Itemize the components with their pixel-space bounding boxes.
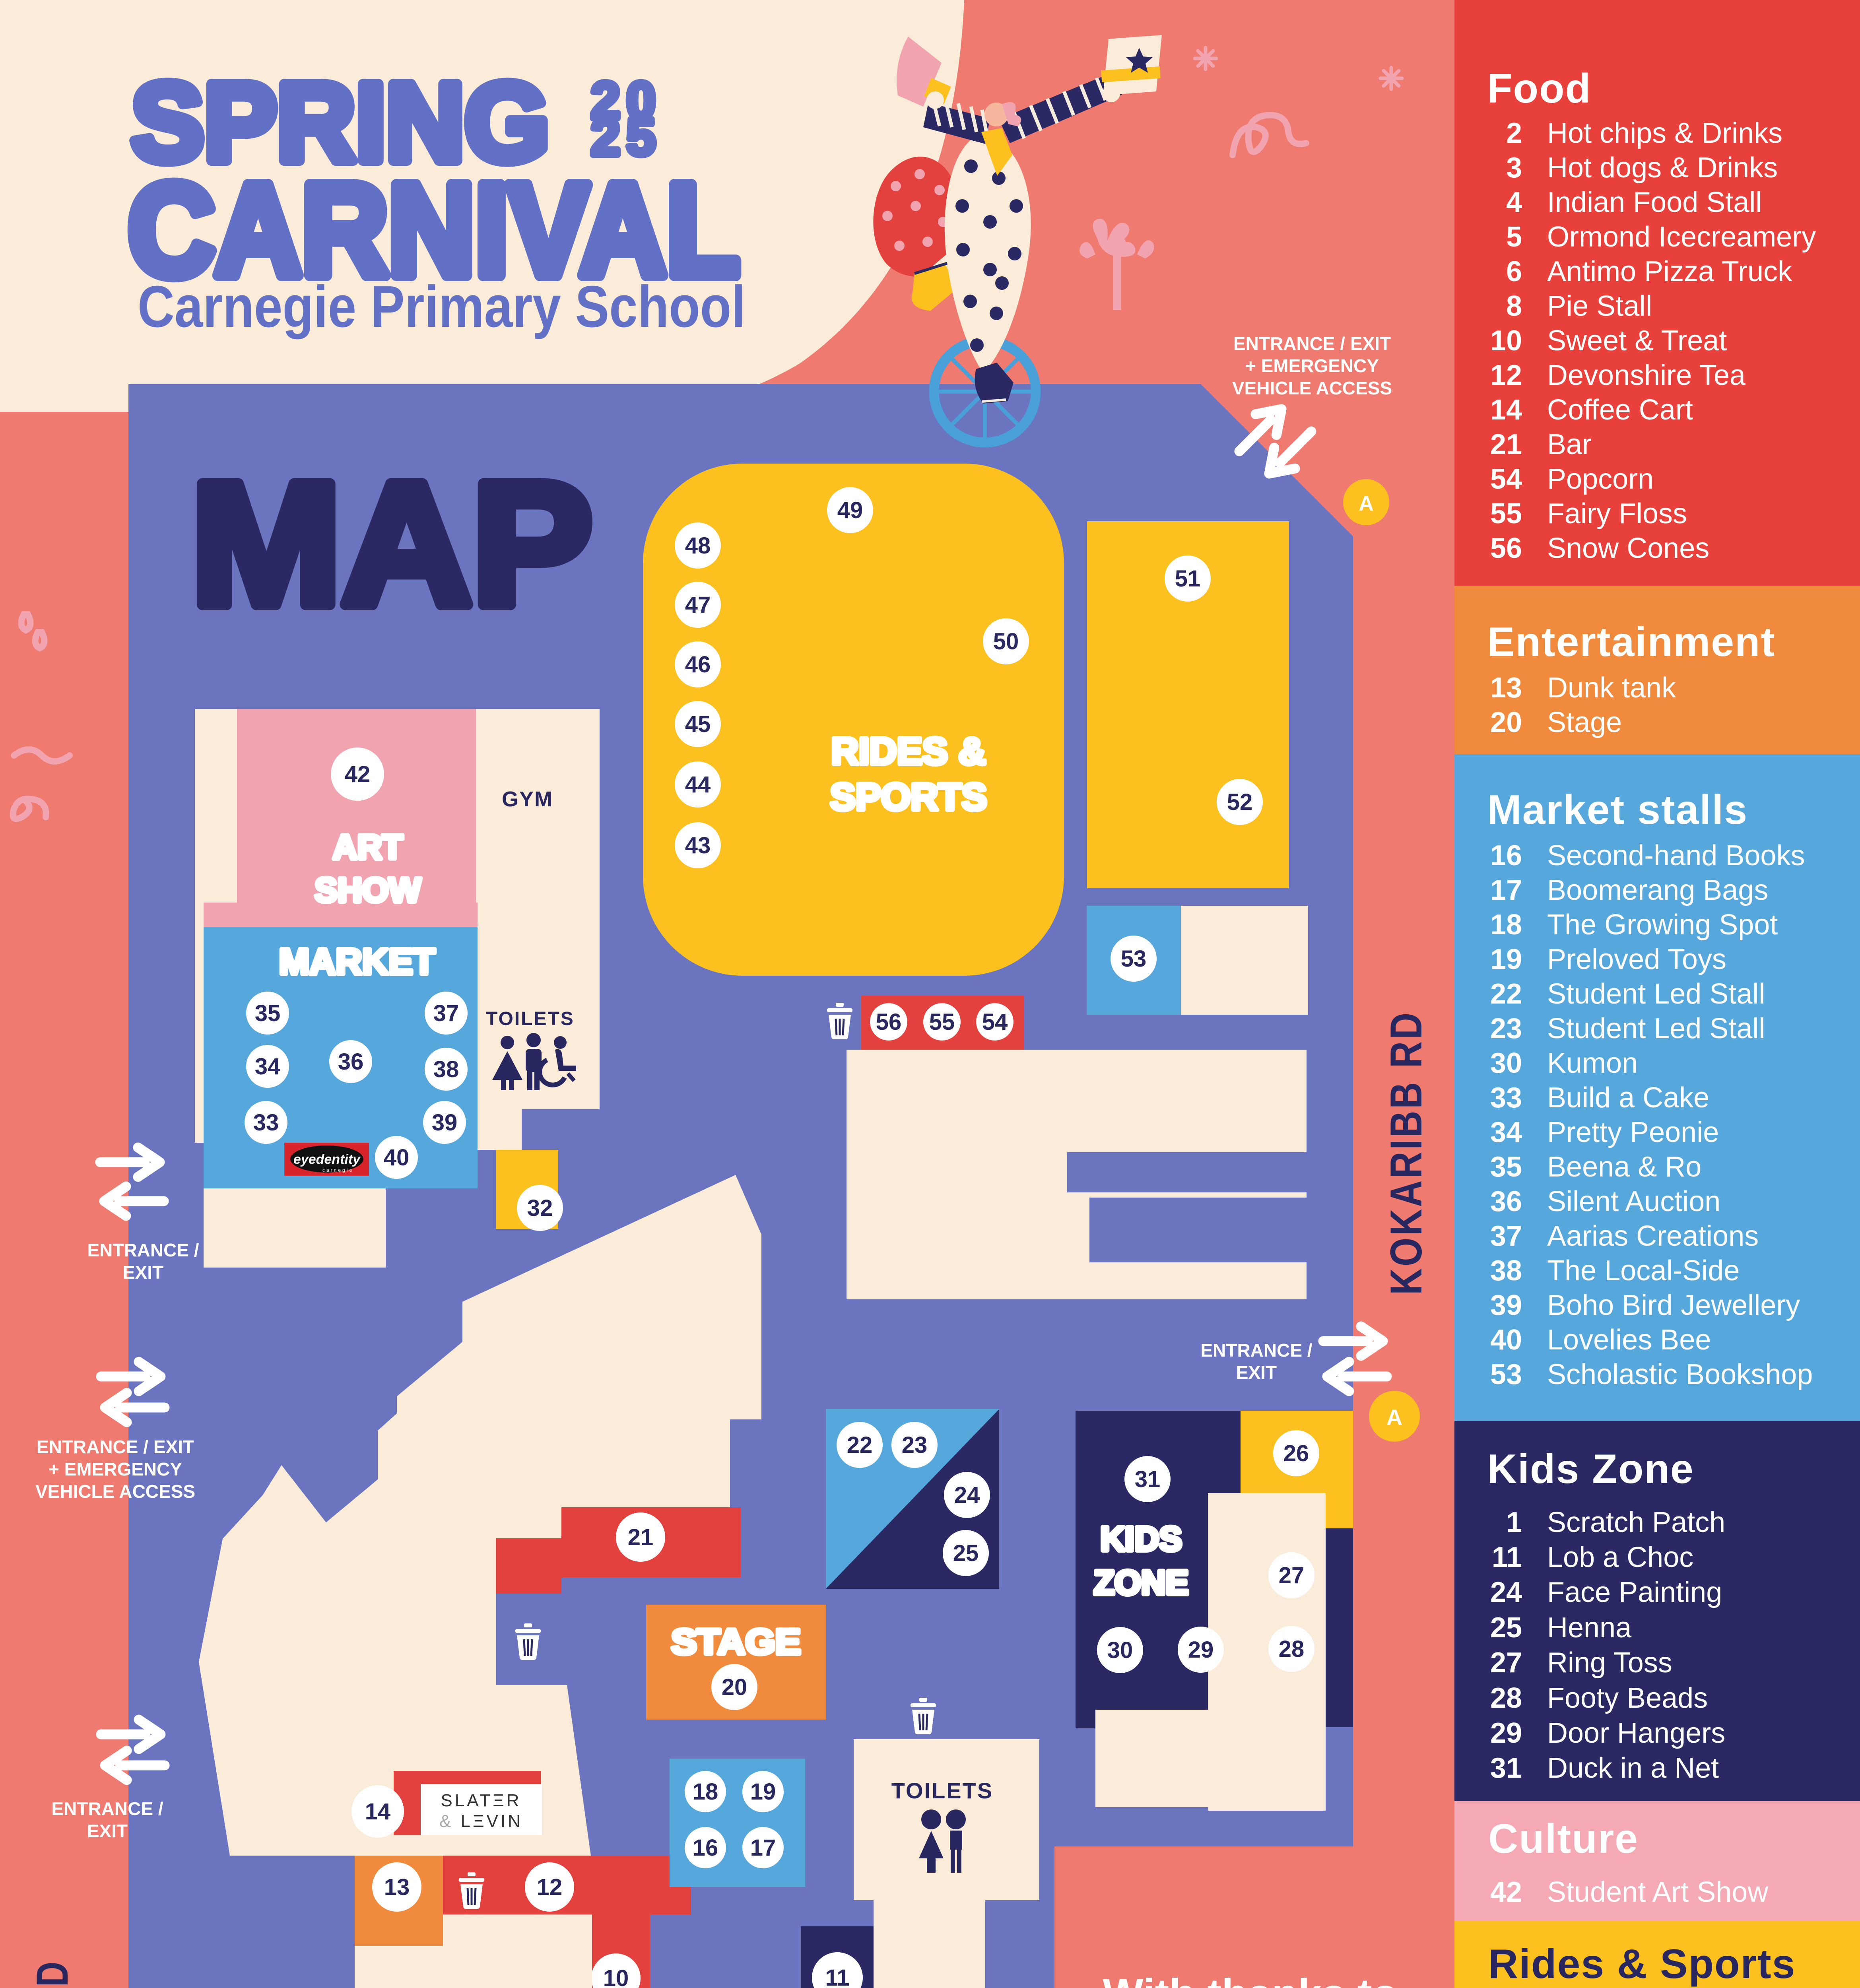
- svg-text:Footy Beads: Footy Beads: [1547, 1682, 1708, 1714]
- svg-text:Popcorn: Popcorn: [1547, 463, 1654, 495]
- svg-text:13: 13: [384, 1874, 410, 1900]
- svg-text:51: 51: [1175, 566, 1201, 592]
- svg-text:39: 39: [432, 1110, 458, 1136]
- svg-text:Kumon: Kumon: [1547, 1047, 1638, 1079]
- svg-text:23: 23: [1490, 1013, 1522, 1044]
- svg-text:30: 30: [1107, 1637, 1133, 1663]
- svg-text:8: 8: [1506, 290, 1522, 322]
- svg-text:25: 25: [1490, 1612, 1522, 1644]
- svg-text:35: 35: [1490, 1151, 1522, 1183]
- svg-text:ENTRANCE /: ENTRANCE /: [1200, 1340, 1312, 1361]
- svg-text:3: 3: [1506, 152, 1522, 184]
- svg-text:10: 10: [603, 1965, 629, 1988]
- svg-text:Scholastic Bookshop: Scholastic Bookshop: [1547, 1359, 1813, 1390]
- svg-text:56: 56: [876, 1009, 902, 1035]
- svg-text:Food: Food: [1487, 66, 1591, 112]
- svg-text:Indian Food Stall: Indian Food Stall: [1547, 186, 1762, 218]
- svg-text:Henna: Henna: [1547, 1612, 1632, 1644]
- svg-text:TOILETS: TOILETS: [891, 1778, 993, 1803]
- svg-text:Face Painting: Face Painting: [1547, 1576, 1722, 1608]
- svg-text:Beena & Ro: Beena & Ro: [1547, 1151, 1701, 1183]
- svg-text:47: 47: [685, 592, 711, 618]
- svg-text:29: 29: [1490, 1717, 1522, 1749]
- svg-text:ENTRANCE / EXIT: ENTRANCE / EXIT: [1233, 333, 1391, 354]
- svg-text:ENTRANCE /: ENTRANCE /: [51, 1798, 163, 1819]
- svg-text:Lob a Choc: Lob a Choc: [1547, 1541, 1693, 1573]
- svg-text:Sweet & Treat: Sweet & Treat: [1547, 325, 1727, 357]
- svg-text:17: 17: [750, 1835, 776, 1861]
- svg-text:22: 22: [1490, 978, 1522, 1010]
- svg-text:31: 31: [1135, 1466, 1161, 1492]
- svg-text:Rides & Sports: Rides & Sports: [1488, 1941, 1796, 1987]
- svg-text:55: 55: [929, 1009, 955, 1035]
- svg-text:18: 18: [693, 1779, 718, 1805]
- svg-text:42: 42: [1490, 1876, 1522, 1908]
- svg-text:14: 14: [365, 1799, 391, 1825]
- svg-text:24: 24: [954, 1482, 980, 1508]
- svg-text:39: 39: [1490, 1289, 1522, 1321]
- svg-text:carnegie: carnegie: [322, 1167, 353, 1173]
- svg-text:40: 40: [384, 1145, 410, 1171]
- svg-text:KIDS: KIDS: [1100, 1520, 1182, 1558]
- svg-text:28: 28: [1490, 1682, 1522, 1714]
- svg-text:Student Art Show: Student Art Show: [1547, 1876, 1769, 1908]
- svg-text:+ EMERGENCY: + EMERGENCY: [1245, 355, 1379, 376]
- svg-text:38: 38: [1490, 1255, 1522, 1287]
- svg-text:44: 44: [685, 772, 711, 798]
- svg-text:Culture: Culture: [1488, 1816, 1639, 1862]
- svg-text:10: 10: [1490, 325, 1522, 357]
- svg-text:19: 19: [1490, 944, 1522, 975]
- svg-text:Aarias Creations: Aarias Creations: [1547, 1220, 1759, 1252]
- svg-text:The Local-Side: The Local-Side: [1547, 1255, 1740, 1287]
- svg-text:54: 54: [982, 1009, 1008, 1035]
- svg-text:Lovelies Bee: Lovelies Bee: [1547, 1324, 1711, 1356]
- svg-text:Kids Zone: Kids Zone: [1487, 1446, 1694, 1492]
- svg-text:36: 36: [1490, 1186, 1522, 1217]
- svg-text:Ring Toss: Ring Toss: [1547, 1647, 1672, 1679]
- svg-text:The Growing Spot: The Growing Spot: [1547, 909, 1778, 941]
- svg-text:14: 14: [1490, 394, 1522, 426]
- svg-text:43: 43: [685, 833, 711, 858]
- svg-text:ART: ART: [333, 828, 403, 866]
- svg-text:Hot chips & Drinks: Hot chips & Drinks: [1547, 117, 1782, 149]
- svg-text:A: A: [1386, 1405, 1402, 1430]
- svg-text:17: 17: [1490, 874, 1522, 906]
- svg-text:SLATΞR: SLATΞR: [441, 1791, 521, 1810]
- svg-text:ENTRANCE / EXIT: ENTRANCE / EXIT: [37, 1437, 194, 1457]
- svg-text:2: 2: [1506, 117, 1522, 149]
- svg-text:26: 26: [1283, 1441, 1309, 1466]
- svg-text:MAP: MAP: [191, 447, 592, 642]
- svg-text:Boho Bird Jewellery: Boho Bird Jewellery: [1547, 1289, 1800, 1321]
- svg-text:20: 20: [1490, 707, 1522, 738]
- svg-text:Hot dogs & Drinks: Hot dogs & Drinks: [1547, 152, 1778, 184]
- svg-text:Silent Auction: Silent Auction: [1547, 1186, 1720, 1217]
- svg-text:21: 21: [1490, 429, 1522, 460]
- svg-text:Pie Stall: Pie Stall: [1547, 290, 1652, 322]
- svg-text:46: 46: [685, 652, 711, 678]
- svg-text:GYM: GYM: [502, 787, 553, 811]
- svg-text:Boomerang Bags: Boomerang Bags: [1547, 874, 1768, 906]
- svg-text:5: 5: [1506, 221, 1522, 253]
- svg-text:With thanks to: With thanks to: [1103, 1970, 1398, 1988]
- svg-text:Antimo Pizza Truck: Antimo Pizza Truck: [1547, 256, 1792, 287]
- svg-text:35: 35: [255, 1000, 281, 1026]
- svg-text:Preloved Toys: Preloved Toys: [1547, 944, 1726, 975]
- svg-text:Carnegie Primary School: Carnegie Primary School: [138, 274, 746, 340]
- svg-text:Fairy Floss: Fairy Floss: [1547, 498, 1687, 530]
- svg-text:22: 22: [847, 1432, 873, 1458]
- svg-text:VEHICLE ACCESS: VEHICLE ACCESS: [35, 1481, 195, 1502]
- svg-text:24: 24: [1490, 1576, 1522, 1608]
- svg-text:27: 27: [1279, 1563, 1305, 1588]
- svg-text:VEHICLE ACCESS: VEHICLE ACCESS: [1232, 378, 1392, 398]
- svg-text:Dunk tank: Dunk tank: [1547, 672, 1676, 704]
- svg-text:6: 6: [1506, 256, 1522, 287]
- svg-text:+ EMERGENCY: + EMERGENCY: [49, 1459, 182, 1479]
- svg-text:Student Led Stall: Student Led Stall: [1547, 978, 1765, 1010]
- svg-text:Market stalls: Market stalls: [1487, 787, 1748, 833]
- svg-text:11: 11: [1492, 1541, 1522, 1573]
- svg-text:Entertainment: Entertainment: [1487, 619, 1775, 665]
- svg-text:30: 30: [1490, 1047, 1522, 1079]
- svg-text:54: 54: [1490, 463, 1522, 495]
- svg-text:Bar: Bar: [1547, 429, 1592, 460]
- svg-text:19: 19: [750, 1779, 776, 1805]
- svg-text:4: 4: [1506, 186, 1522, 218]
- svg-text:Pretty Peonie: Pretty Peonie: [1547, 1116, 1719, 1148]
- svg-text:28: 28: [1279, 1636, 1305, 1662]
- svg-text:38: 38: [433, 1056, 459, 1082]
- svg-text:Ormond Icecreamery: Ormond Icecreamery: [1547, 221, 1816, 253]
- svg-text:Student Led Stall: Student Led Stall: [1547, 1013, 1765, 1044]
- svg-text:MARKET: MARKET: [279, 942, 435, 982]
- svg-text:21: 21: [628, 1524, 654, 1550]
- svg-text:31: 31: [1490, 1752, 1522, 1784]
- svg-text:13: 13: [1490, 672, 1522, 704]
- svg-text:18: 18: [1490, 909, 1522, 941]
- svg-text:29: 29: [1188, 1637, 1214, 1663]
- svg-text:SPORTS: SPORTS: [830, 776, 987, 818]
- svg-text:37: 37: [1490, 1220, 1522, 1252]
- svg-text:50: 50: [993, 629, 1019, 654]
- svg-text:53: 53: [1121, 946, 1147, 972]
- svg-text:RIDES &: RIDES &: [831, 730, 986, 773]
- svg-text:40: 40: [1490, 1324, 1522, 1356]
- svg-text:Build a Cake: Build a Cake: [1547, 1082, 1709, 1114]
- svg-text:A: A: [1359, 492, 1374, 515]
- svg-text:Scratch Patch: Scratch Patch: [1547, 1507, 1725, 1538]
- svg-text:KOKARIBB RD: KOKARIBB RD: [1381, 1011, 1431, 1295]
- svg-text:TRUGANINI RD: TRUGANINI RD: [27, 1960, 77, 1988]
- svg-text:TOILETS: TOILETS: [486, 1008, 575, 1029]
- svg-text:34: 34: [255, 1054, 281, 1079]
- svg-text:EXIT: EXIT: [123, 1262, 163, 1283]
- svg-text:STAGE: STAGE: [671, 1622, 801, 1662]
- svg-text:11: 11: [825, 1965, 849, 1988]
- svg-text:32: 32: [527, 1195, 553, 1221]
- svg-text:16: 16: [693, 1835, 718, 1861]
- svg-text:12: 12: [1490, 359, 1522, 391]
- svg-text:52: 52: [1227, 789, 1253, 815]
- svg-text:33: 33: [1490, 1082, 1522, 1114]
- svg-text:eyedentity: eyedentity: [293, 1152, 361, 1167]
- svg-text:Devonshire Tea: Devonshire Tea: [1547, 359, 1746, 391]
- svg-text:Second-hand Books: Second-hand Books: [1547, 840, 1805, 872]
- svg-text:37: 37: [433, 1000, 459, 1026]
- svg-text:1: 1: [1506, 1507, 1522, 1538]
- svg-text:Duck in a Net: Duck in a Net: [1547, 1752, 1719, 1784]
- svg-text:55: 55: [1490, 498, 1522, 530]
- svg-text:16: 16: [1490, 840, 1522, 872]
- svg-text:ENTRANCE /: ENTRANCE /: [87, 1240, 199, 1260]
- svg-text:42: 42: [345, 761, 371, 787]
- svg-text:SHOW: SHOW: [315, 871, 421, 909]
- svg-text:27: 27: [1490, 1647, 1522, 1679]
- svg-text:36: 36: [338, 1049, 364, 1075]
- svg-text:Snow Cones: Snow Cones: [1547, 532, 1709, 564]
- svg-text:20: 20: [722, 1674, 747, 1700]
- svg-text:25: 25: [953, 1540, 979, 1566]
- svg-text:ZONE: ZONE: [1094, 1564, 1189, 1602]
- svg-text:56: 56: [1490, 532, 1522, 564]
- svg-text:33: 33: [253, 1110, 279, 1136]
- svg-text:49: 49: [837, 497, 863, 523]
- svg-text:EXIT: EXIT: [1236, 1362, 1277, 1383]
- svg-text:53: 53: [1490, 1359, 1522, 1390]
- svg-text:Stage: Stage: [1547, 707, 1622, 738]
- svg-text:45: 45: [685, 711, 711, 737]
- svg-text:48: 48: [685, 533, 711, 559]
- svg-text:& LΞVIN: & LΞVIN: [439, 1811, 523, 1831]
- svg-text:34: 34: [1490, 1116, 1522, 1148]
- svg-text:EXIT: EXIT: [87, 1821, 128, 1841]
- svg-text:Coffee Cart: Coffee Cart: [1547, 394, 1693, 426]
- svg-text:23: 23: [902, 1432, 928, 1458]
- svg-text:12: 12: [537, 1874, 563, 1900]
- svg-text:Door Hangers: Door Hangers: [1547, 1717, 1725, 1749]
